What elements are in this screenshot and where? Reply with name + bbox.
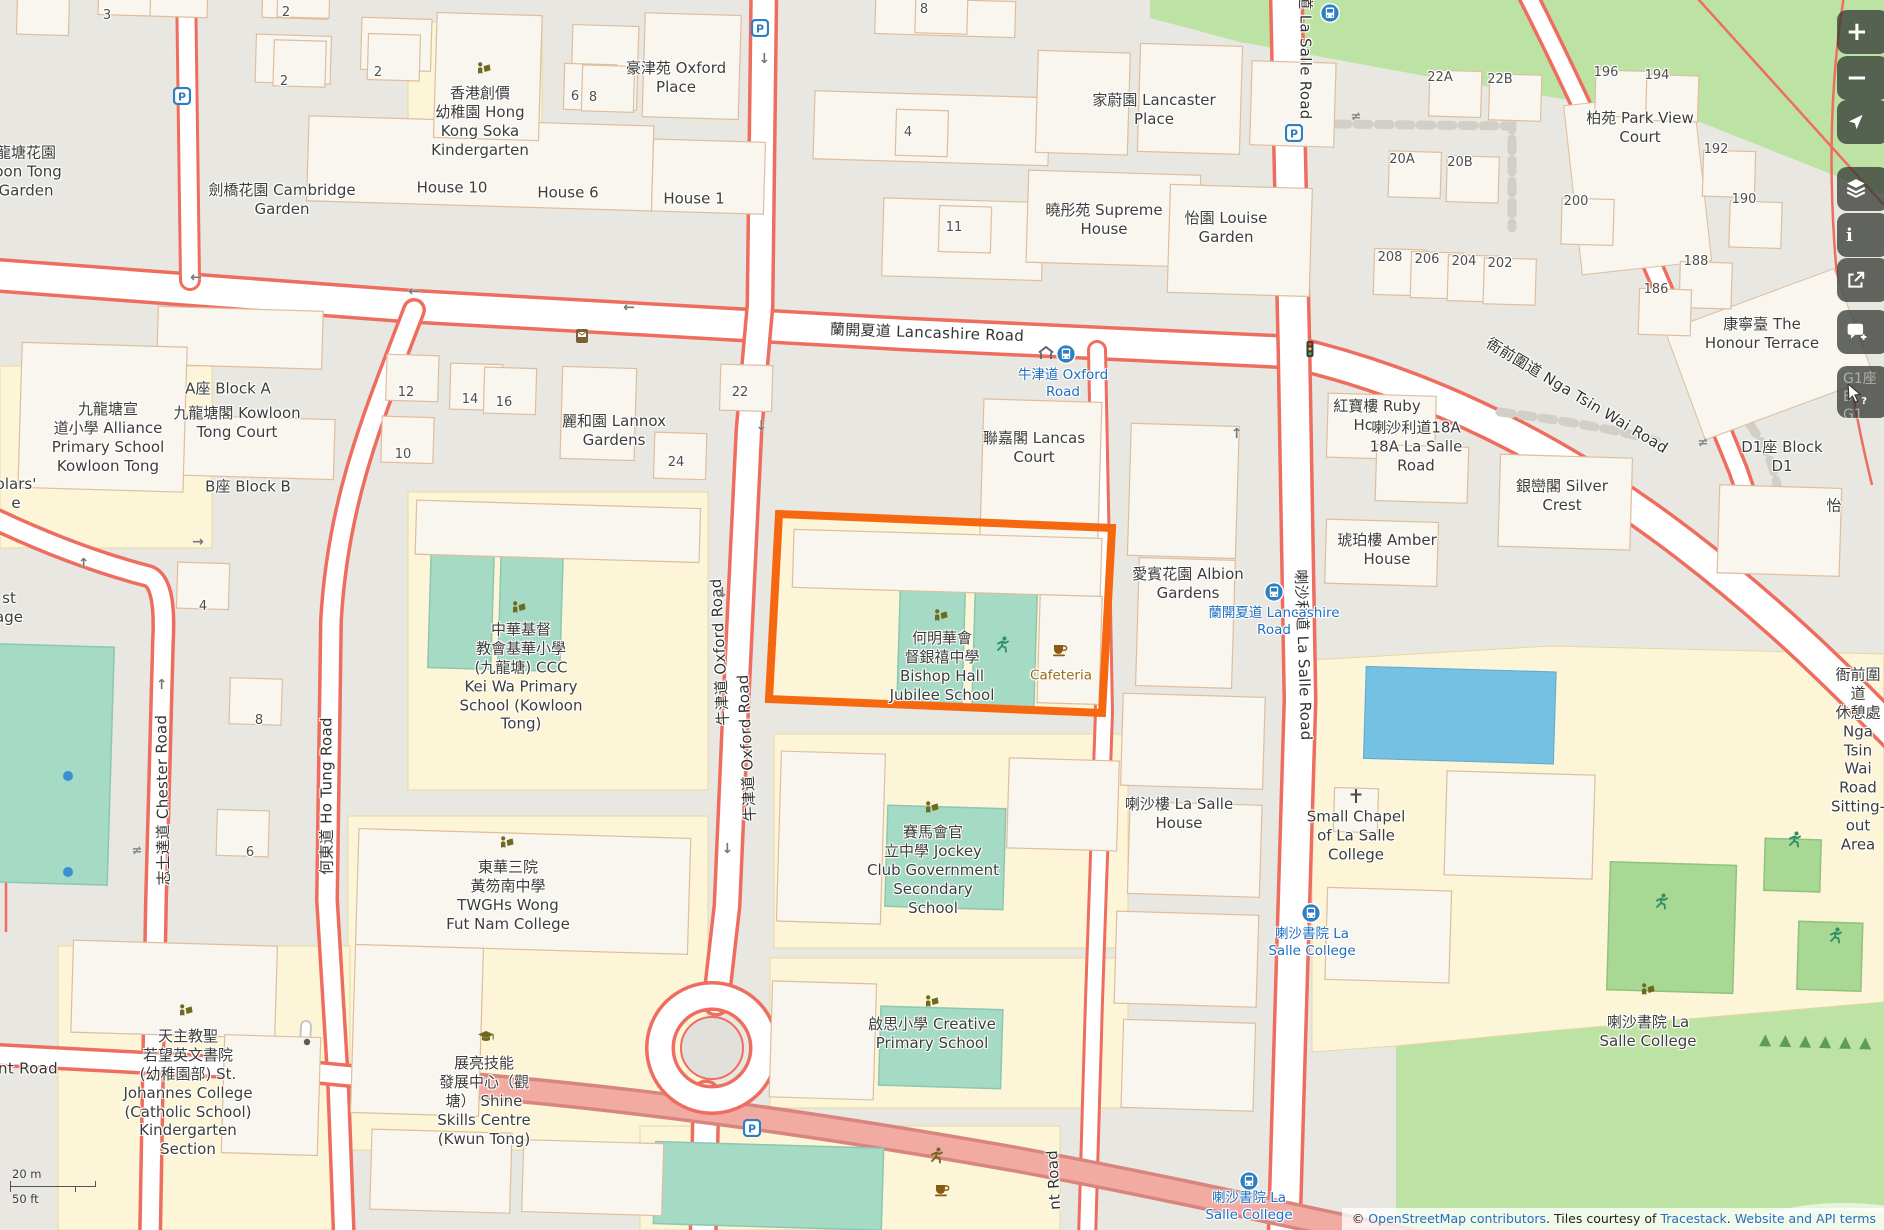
- shelter-icon: [1037, 345, 1055, 361]
- map-label-small-chapel: Small Chapel of La Salle College: [1307, 808, 1406, 865]
- map-label-lancaster-place: 家蔚園 Lancaster Place: [1092, 91, 1215, 129]
- map-label-louise-garden: 怡園 Louise Garden: [1185, 209, 1268, 247]
- cup-icon: [934, 1182, 951, 1199]
- map-label-block-a: A座 Block A: [185, 380, 271, 399]
- bus-icon: [1301, 903, 1321, 923]
- school-icon: [510, 599, 528, 617]
- map-label-block-b: B座 Block B: [205, 478, 291, 497]
- oneway-arrow-icon: →: [408, 283, 420, 299]
- runner-icon: [1652, 892, 1672, 912]
- map-label-num-208: 208: [1378, 250, 1403, 266]
- gate-icon: ≠: [1351, 110, 1362, 125]
- map-label-twghs-wong-fut-nam-college: 東華三院 黃笏南中學 TWGHs Wong Fut Nam College: [446, 858, 570, 934]
- map-label-num-4b: 4: [199, 599, 207, 615]
- oneway-arrow-icon: →: [753, 419, 769, 431]
- map-label-creative-primary-school: 啟思小學 Creative Primary School: [868, 1015, 996, 1053]
- cup-icon: [1052, 642, 1069, 659]
- map-label-num-22b: 22B: [1487, 72, 1512, 88]
- map-label-num-2c: 2: [374, 65, 382, 81]
- feedback-button[interactable]: [1837, 310, 1884, 354]
- zoom-in-button[interactable]: +: [1837, 10, 1884, 54]
- locate-arrow-icon: [1846, 112, 1866, 132]
- share-button[interactable]: [1837, 258, 1884, 302]
- map-label-fragment-scholars: olars' e: [0, 475, 36, 513]
- map-label-la-salle-road-18a: 喇沙利道18A 18A La Salle Road: [1370, 419, 1463, 476]
- map-label-road-chester: 志士達道 Chester Road: [152, 715, 174, 886]
- bluedot-icon: [63, 867, 74, 878]
- svg-text:P: P: [178, 91, 186, 104]
- oneway-arrow-icon: →: [714, 586, 730, 598]
- svg-text:P: P: [756, 23, 764, 36]
- tracestack-link[interactable]: Tracestack: [1660, 1211, 1726, 1226]
- parking-icon: P: [751, 19, 769, 37]
- map-label-num-2b: 2: [280, 74, 288, 90]
- share-icon: [1846, 270, 1866, 290]
- map-label-num-204: 204: [1452, 254, 1477, 270]
- map-label-shine-skills-centre: 展亮技能 發展中心（觀 塘） Shine Skills Centre (Kwun…: [437, 1054, 530, 1148]
- map-label-num-186: 186: [1644, 282, 1669, 298]
- map-label-num-196: 196: [1594, 65, 1619, 81]
- map-label-alliance-primary-school: 九龍塘宣 道小學 Alliance Primary School Kowloon…: [52, 400, 165, 476]
- parking-icon: P: [743, 1119, 761, 1137]
- map-label-road-nt-left: nt Road: [0, 1060, 58, 1079]
- map-label-num-10: 10: [395, 447, 412, 463]
- map-label-kowloon-tong-court: 九龍塘閣 Kowloon Tong Court: [173, 404, 300, 442]
- map-label-num-20a: 20A: [1389, 152, 1414, 168]
- map-label-kei-wa-primary-school: 中華基督 教會基華小學 (九龍塘) CCC Kei Wa Primary Sch…: [460, 620, 583, 733]
- map-label-honour-terrace: 康寧臺 The Honour Terrace: [1705, 315, 1819, 353]
- oneway-arrow-icon: →: [1229, 427, 1245, 439]
- map-label-num-4a: 4: [904, 125, 912, 141]
- map-label-road-nt-bottom: nt Road: [1043, 1150, 1065, 1211]
- school-icon: [177, 1002, 195, 1020]
- cross-icon: [1349, 788, 1363, 804]
- map-root: 龍塘花園 loon Tong Garden劍橋花園 Cambridge Gard…: [0, 0, 1884, 1230]
- plus-icon: +: [1846, 19, 1868, 45]
- map-label-silver-crest: 銀巒閣 Silver Crest: [1516, 477, 1608, 515]
- postbox-icon: [575, 328, 589, 344]
- school-icon: [1639, 981, 1657, 999]
- map-label-supreme-house: 曉彤苑 Supreme House: [1045, 201, 1162, 239]
- gradcap-icon: [476, 1027, 496, 1045]
- map-label-num-11: 11: [946, 220, 963, 236]
- map-label-albion-gardens: 愛賓花園 Albion Gardens: [1132, 565, 1244, 603]
- gate-icon: ≠: [132, 844, 143, 859]
- oneway-arrow-icon: →: [190, 269, 202, 285]
- bus-icon: [1056, 344, 1076, 364]
- map-label-st-johannes-college: 天主教聖 若望英文書院 (幼稚園部) St. Johannes College …: [123, 1027, 252, 1159]
- map-label-busstop-la-salle-college-e: 喇沙書院 La Salle College: [1268, 926, 1355, 960]
- map-label-nga-tsin-wai-sitting-out-area: 衙前圍道 休憩處 Nga Tsin Wai Road Sitting-out A…: [1831, 666, 1884, 855]
- map-label-num-12: 12: [398, 385, 415, 401]
- gate-icon: ≠: [1698, 436, 1709, 451]
- tiles-courtesy-text: . Tiles courtesy of: [1546, 1211, 1660, 1226]
- scale-metric-label: 20 m: [10, 1167, 96, 1181]
- map-label-oxford-place: 豪津苑 Oxford Place: [626, 59, 726, 97]
- school-icon: [923, 799, 941, 817]
- map-label-num-200: 200: [1564, 194, 1589, 210]
- map-label-house-1: House 1: [663, 190, 724, 209]
- map-label-num-8a: 8: [589, 90, 597, 106]
- map-label-num-22a: 22A: [1427, 70, 1452, 86]
- map-label-lannox-gardens: 麗和園 Lannox Gardens: [562, 412, 666, 450]
- school-icon: [932, 607, 950, 625]
- school-icon: [923, 993, 941, 1011]
- map-label-park-view-court: 柏苑 Park View Court: [1586, 109, 1694, 147]
- layers-icon: [1846, 178, 1866, 200]
- layers-button[interactable]: [1837, 167, 1884, 211]
- map-label-num-2a: 2: [282, 5, 290, 21]
- terms-link[interactable]: Website and API terms: [1735, 1211, 1876, 1226]
- map-label-num-8b: 8: [920, 2, 928, 18]
- map-label-num-188: 188: [1684, 254, 1709, 270]
- parking-icon: P: [173, 87, 191, 105]
- map-label-num-202: 202: [1488, 256, 1513, 272]
- map-label-num-16: 16: [496, 395, 513, 411]
- runner-icon: [1826, 926, 1846, 946]
- svg-text:P: P: [1290, 128, 1298, 141]
- school-icon: [475, 60, 493, 78]
- info-button[interactable]: i: [1837, 213, 1884, 257]
- map-label-num-14: 14: [462, 392, 479, 408]
- map-label-house-10: House 10: [417, 179, 488, 198]
- bus-icon: [1239, 1171, 1259, 1191]
- info-icon: i: [1846, 225, 1853, 246]
- map-label-busstop-lancashire-road: 蘭開夏道 Lancashire Road: [1208, 605, 1339, 639]
- map-label-num-8c: 8: [255, 713, 263, 729]
- runner-icon: [993, 635, 1013, 655]
- map-label-num-20b: 20B: [1447, 155, 1472, 171]
- map-label-kowloon-tong-garden: 龍塘花園 loon Tong Garden: [0, 144, 62, 201]
- map-label-bishop-hall-jubilee-school: 何明華會 督銀禧中學 Bishop Hall Jubilee School: [890, 629, 995, 705]
- map-label-cambridge-garden: 劍橋花園 Cambridge Garden: [208, 181, 355, 219]
- scale-imperial-label: 50 ft: [10, 1192, 96, 1206]
- map-label-busstop-oxford-road: 牛津道 Oxford Road: [1018, 367, 1108, 401]
- map-label-d1-block: D1座 Block D1: [1741, 438, 1822, 476]
- oneway-arrow-icon: →: [76, 557, 92, 569]
- map-label-num-192: 192: [1704, 142, 1729, 158]
- map-label-num-24: 24: [668, 455, 685, 471]
- attribution: © OpenStreetMap contributors. Tiles cour…: [1342, 1208, 1884, 1230]
- runner-icon: [1785, 830, 1805, 850]
- map-label-num-190: 190: [1732, 192, 1757, 208]
- map-label-num-194: 194: [1645, 68, 1670, 84]
- cursor-icon: ?: [1847, 384, 1869, 406]
- chat-icon: [1846, 321, 1868, 343]
- map-type-button[interactable]: G1座 B G1 ?: [1837, 366, 1884, 418]
- scale-bar: 20 m 50 ft: [10, 1167, 96, 1206]
- map-label-amber-house: 琥珀樓 Amber House: [1337, 531, 1437, 569]
- bus-icon: [1320, 3, 1340, 23]
- school-icon: [498, 834, 516, 852]
- oneway-arrow-icon: →: [756, 52, 772, 64]
- oneway-arrow-icon: →: [154, 678, 170, 690]
- traffic-icon: [1306, 341, 1314, 358]
- minus-icon: −: [1846, 65, 1868, 91]
- map-label-fragment-yi: 怡: [1826, 497, 1841, 516]
- copyright-text: ©: [1352, 1211, 1368, 1226]
- bluedot-icon: [63, 771, 74, 782]
- map-label-house-6: House 6: [537, 184, 598, 203]
- map-label-num-206: 206: [1415, 252, 1440, 268]
- map-label-num-6b: 6: [246, 845, 254, 861]
- osm-contributors-link[interactable]: OpenStreetMap contributors: [1368, 1211, 1546, 1226]
- map-label-la-salle-house: 喇沙樓 La Salle House: [1125, 795, 1233, 833]
- zoom-out-button[interactable]: −: [1837, 56, 1884, 100]
- map-label-jockey-club-govt-secondary-school: 賽馬會官 立中學 Jockey Club Government Secondar…: [867, 823, 999, 917]
- parking-icon: P: [1285, 124, 1303, 142]
- oneway-arrow-icon: →: [623, 299, 635, 315]
- map-label-num-3: 3: [103, 8, 111, 24]
- map-label-num-22: 22: [732, 385, 749, 401]
- map-label-road-ho-tung: 何東道 Ho Tung Road: [318, 717, 337, 875]
- map-label-fragment-st-age: st age: [0, 589, 23, 627]
- runner-olive-icon: [927, 1146, 947, 1166]
- oneway-arrow-icon: →: [719, 842, 735, 854]
- map-label-busstop-la-salle-college-s: 喇沙書院 La Salle College: [1205, 1190, 1292, 1224]
- bus-icon: [1264, 582, 1284, 602]
- svg-text:?: ?: [1861, 396, 1867, 406]
- map-label-cafeteria: Cafeteria: [1030, 668, 1092, 685]
- map-label-soka-kindergarten: 香港創價 幼稚園 Hong Kong Soka Kindergarten: [431, 84, 529, 160]
- svg-text:P: P: [748, 1123, 756, 1136]
- separator-text: .: [1727, 1211, 1735, 1226]
- oneway-arrow-icon: →: [192, 534, 204, 550]
- map-label-lancas-court: 聯嘉閣 Lancas Court: [983, 429, 1085, 467]
- dot-icon: [304, 1039, 311, 1046]
- map-label-num-6: 6: [571, 89, 579, 105]
- locate-button[interactable]: [1837, 100, 1884, 144]
- map-label-la-salle-college: 喇沙書院 La Salle College: [1599, 1013, 1696, 1051]
- map-label-road-la-salle-top: 道 La Salle Road: [1296, 0, 1315, 120]
